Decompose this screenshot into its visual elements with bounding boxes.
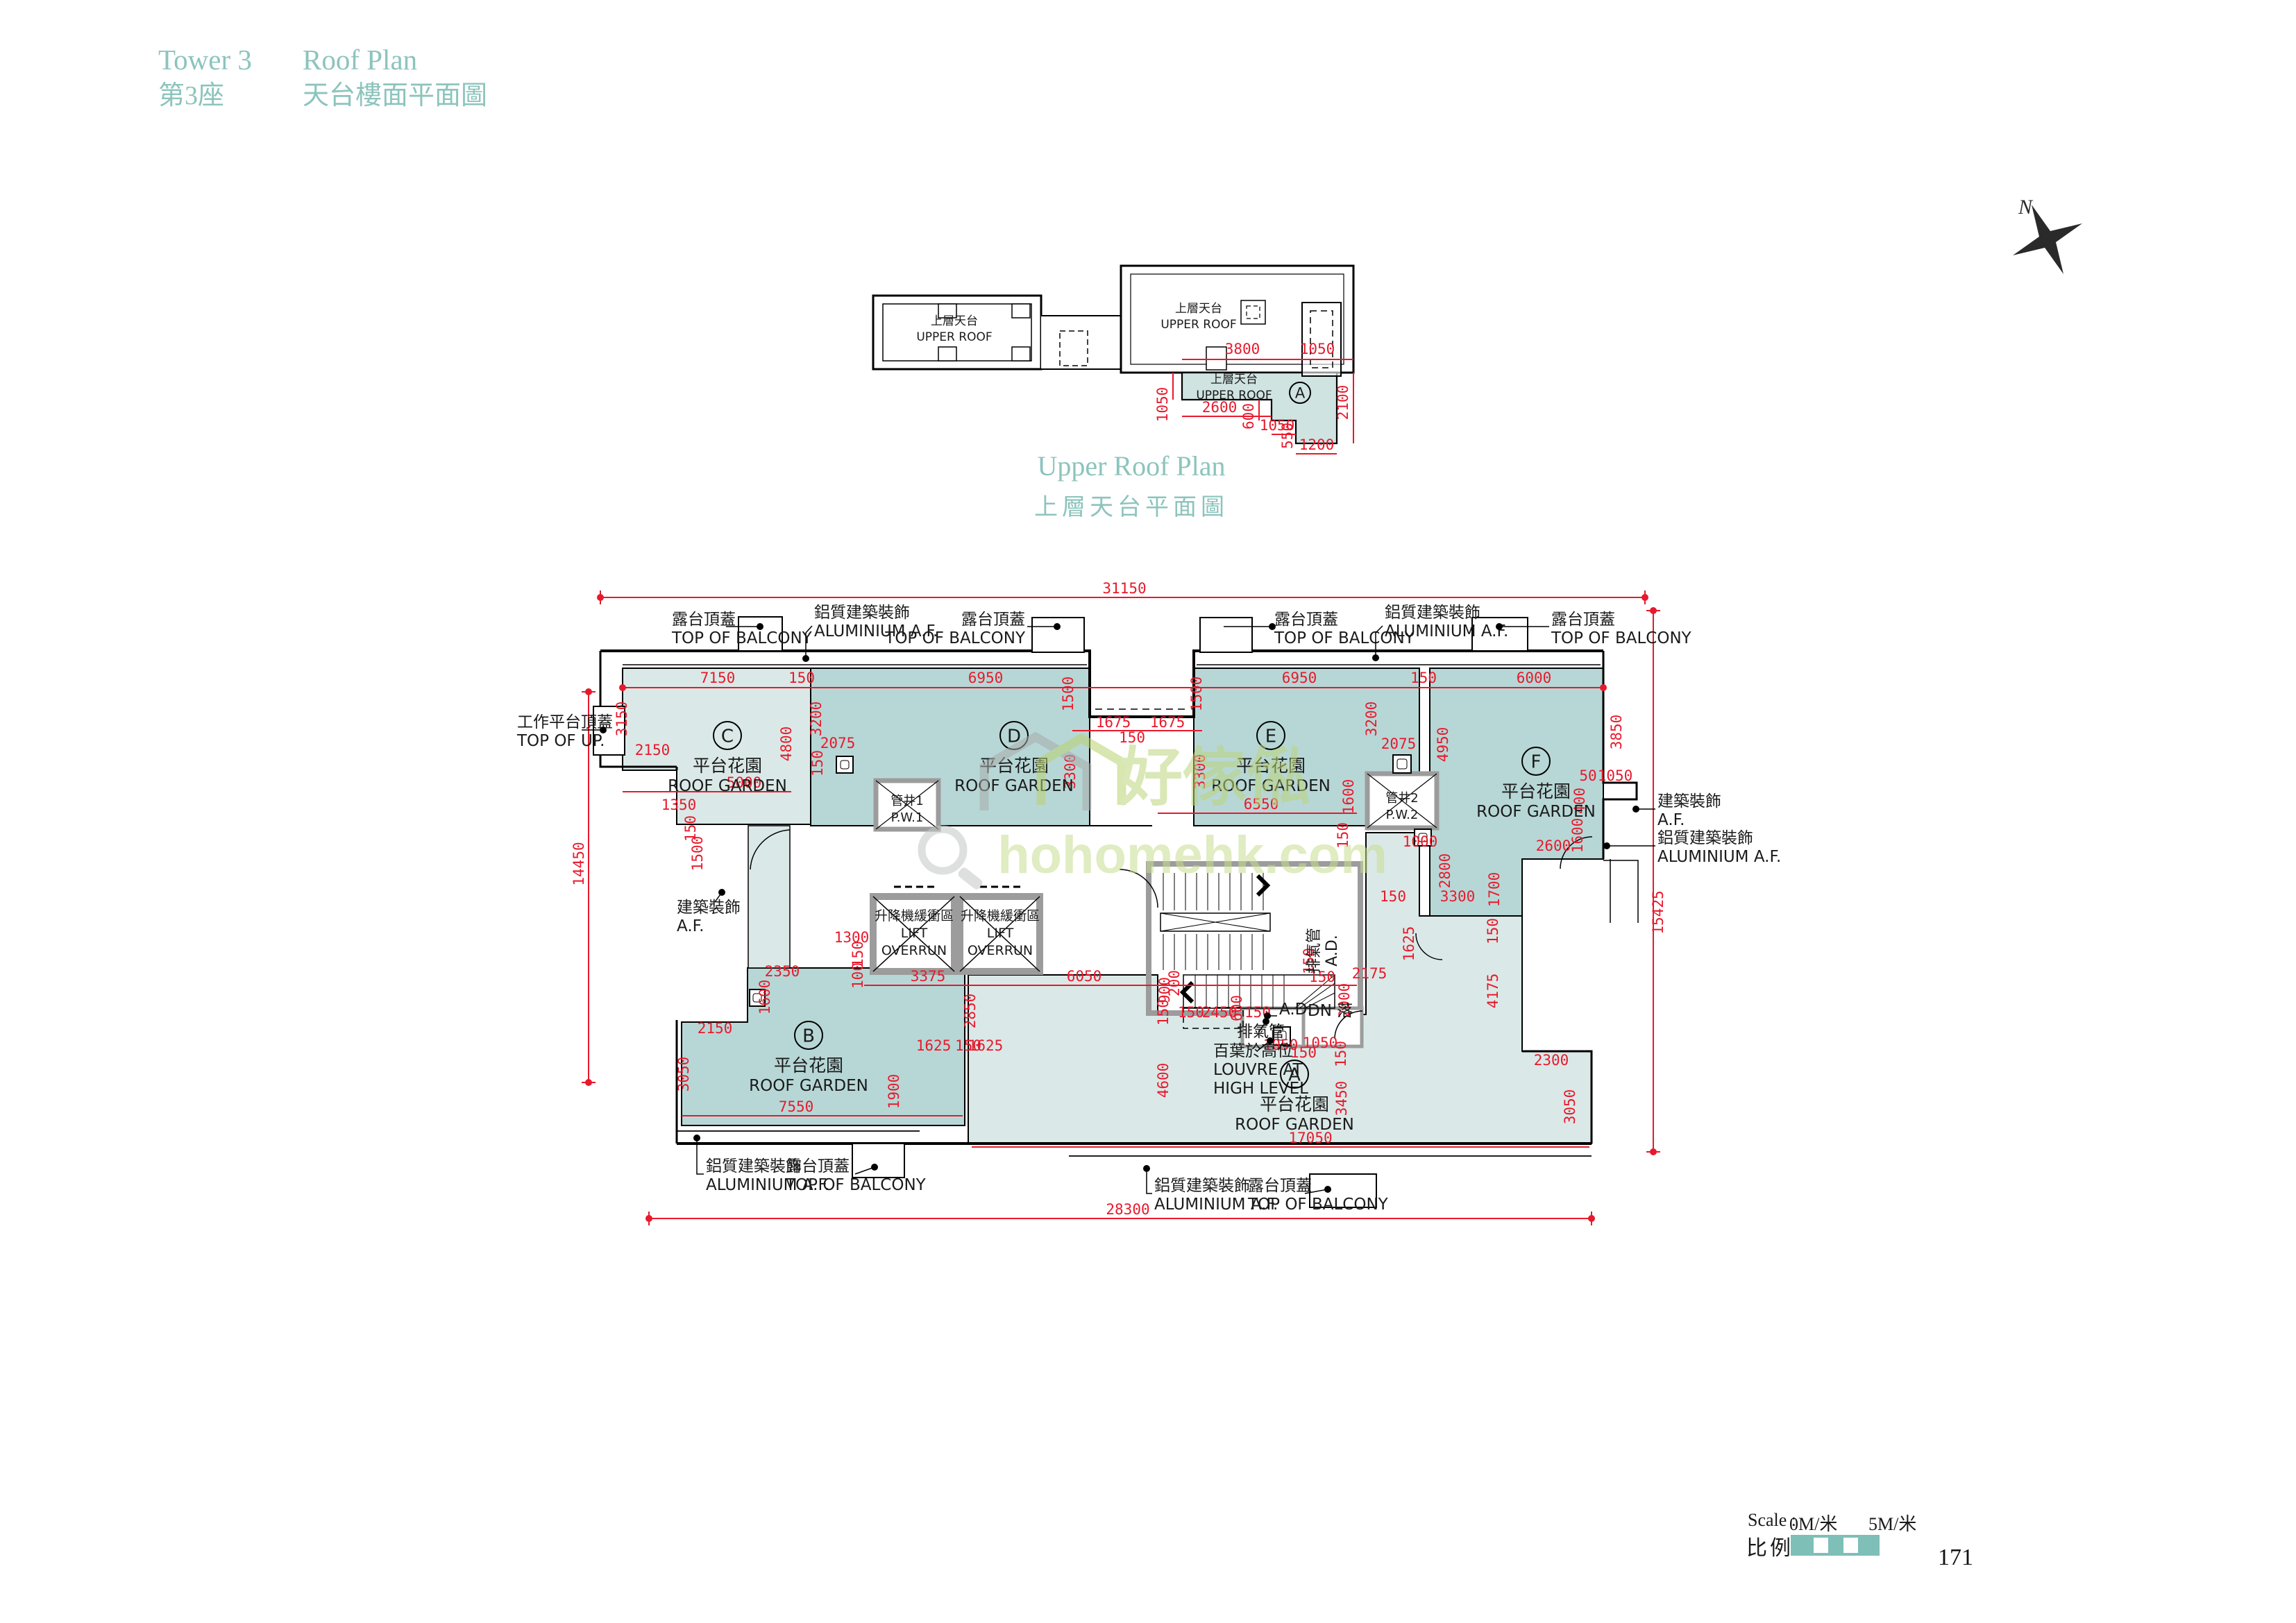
plan-label: 管井1: [890, 794, 923, 808]
brochure-page: Tower 3 Roof Plan 第3座 天台樓面平面圖 Upper Roof…: [0, 0, 2296, 1623]
scale-bar-segment: [1814, 1538, 1828, 1553]
dimension-label: 1900: [886, 1074, 902, 1110]
callout-dot: [718, 889, 725, 896]
callout-dot: [1264, 1012, 1271, 1019]
dimension-label: 2075: [1381, 736, 1417, 752]
callout-label: TOP OF BALCONY: [1247, 1196, 1389, 1214]
callout-label: 建築裝飾: [1657, 792, 1721, 810]
dimension-label: 4950: [1435, 727, 1451, 763]
callout-dot: [1603, 842, 1610, 849]
dimension-label: 2800: [1437, 853, 1453, 889]
plan-label: OVERRUN: [968, 943, 1033, 958]
callout-label: TOP OF BALCONY: [884, 629, 1026, 647]
roof-garden-label-en: ROOF GARDEN: [954, 777, 1074, 795]
scale-end-label: 5M/米: [1868, 1510, 1916, 1536]
roof-garden-label-en: ROOF GARDEN: [668, 777, 787, 795]
dimension-label: 200: [1166, 970, 1183, 996]
plan-label: P.W.2: [1386, 808, 1419, 822]
dimension-label: 1050: [1598, 767, 1633, 784]
upper-roof-label: UPPER ROOF: [1196, 389, 1272, 402]
callout-dot: [757, 623, 763, 630]
dimension-label: 150: [1410, 670, 1437, 686]
scale-bar-segment: [1843, 1538, 1858, 1553]
dimension-label: 15425: [1650, 890, 1666, 934]
dimension-label: 6950: [968, 670, 1004, 686]
main-roof-plan: [582, 590, 1660, 1225]
callout-label: A.F.: [1657, 811, 1685, 829]
dimension-label: 1625: [916, 1037, 952, 1054]
callout-label: TOP OF BALCONY: [785, 1176, 927, 1194]
dimension-label: 1050: [1300, 341, 1335, 357]
dimension-label: 1625: [968, 1037, 1004, 1054]
dimension-label: 14450: [571, 842, 587, 885]
callout-dot: [1324, 1186, 1331, 1193]
dimension-label: 1625: [1401, 926, 1417, 962]
unit-letter: F: [1531, 751, 1542, 772]
dimension-label: 1500: [1188, 677, 1205, 712]
callout-label: 排氣管: [1237, 1023, 1285, 1041]
callout-label: 露台頂蓋: [1248, 1177, 1312, 1195]
roof-garden-label-zh: 平台花園: [1260, 1094, 1329, 1114]
callout-leader: [1147, 1169, 1152, 1193]
plan-label: 管井2: [1385, 791, 1418, 806]
dimension-label: 1500: [689, 836, 706, 872]
dimension-label: 3200: [1363, 702, 1380, 737]
callout-label: 百葉於高位: [1213, 1042, 1293, 1060]
north-compass-icon: N: [2013, 196, 2082, 274]
dimension-label: 150: [809, 750, 826, 776]
callout-dot: [1054, 623, 1061, 630]
upper-roof-label: 上層天台: [931, 314, 978, 328]
dimension-label: 2350: [765, 963, 800, 980]
dimension-label: 150: [1178, 1004, 1204, 1021]
callout-dot: [1496, 623, 1503, 630]
dimension-label: 100: [850, 962, 866, 989]
dimension-label: 2150: [635, 742, 670, 758]
dimension-label: 2075: [820, 735, 856, 751]
dimension-label: 2300: [1534, 1052, 1569, 1069]
unit-letter: A: [1288, 1064, 1301, 1085]
dimension-label: 7550: [779, 1098, 814, 1115]
dimension-label: 1500: [1060, 677, 1077, 712]
dimension-label: 600: [1229, 995, 1245, 1021]
callout-dot: [1632, 806, 1639, 813]
callout-label: 鋁質建築裝飾: [1657, 829, 1753, 847]
dimension-label: 28300: [1106, 1201, 1149, 1218]
callout-dot: [693, 1135, 700, 1141]
callout-dot: [1372, 654, 1379, 661]
plan-label: P.W.1: [891, 810, 924, 825]
dimension-label: 1600: [757, 980, 773, 1015]
callout-label: TOP OF BALCONY: [671, 629, 813, 647]
upper-roof-label: UPPER ROOF: [1160, 318, 1236, 332]
dimension-label: 1050: [1154, 387, 1171, 423]
dimension-label: 150: [1333, 1041, 1349, 1067]
callout-label: TOP OF BALCONY: [1551, 629, 1692, 647]
dimension-label: 1675: [1096, 714, 1131, 731]
dimension-label: 1600: [1569, 818, 1586, 853]
callout-label: 鋁質建築裝飾: [814, 604, 910, 622]
roof-garden-label-zh: 平台花園: [693, 756, 762, 776]
scale-bar-graphic: [1791, 1535, 1880, 1556]
unit-letter: C: [721, 726, 734, 747]
watermark-magnifier-icon: [922, 829, 963, 871]
dimension-label: 3375: [911, 968, 946, 985]
callout-label: 建築裝飾: [677, 899, 741, 917]
dimension-label: 6000: [1517, 670, 1552, 686]
dimension-label: 550: [1279, 423, 1296, 449]
page-number: 171: [1938, 1545, 1973, 1571]
dimension-label: 1350: [661, 797, 697, 813]
dimension-label: 2850: [962, 994, 979, 1029]
upper-roof-label: UPPER ROOF: [916, 330, 992, 344]
callout-dot: [1143, 1165, 1150, 1172]
dimension-label: 3050: [1562, 1089, 1578, 1125]
dimension-label: 1600: [1340, 779, 1357, 815]
watermark-brand: 好傢俬: [1118, 742, 1310, 813]
dimension-label: 600: [1240, 403, 1257, 430]
callout-label: 露台頂蓋: [1551, 611, 1615, 629]
dimension-label: 50: [1579, 767, 1596, 784]
dimension-label: 3850: [1608, 715, 1625, 750]
roof-garden-label-en: ROOF GARDEN: [1476, 803, 1596, 821]
dimension-label: 6950: [1282, 670, 1317, 686]
callout-label: DN 落: [1308, 1002, 1353, 1020]
callout-label: 露台頂蓋: [786, 1157, 850, 1175]
callout-label: 露台頂蓋: [961, 611, 1025, 629]
plan-label: 升降機緩衝區: [875, 908, 954, 924]
callout-label: 鋁質建築裝飾: [1154, 1177, 1250, 1195]
dimension-label: 150: [788, 670, 815, 686]
dimension-label: 3200: [808, 702, 825, 737]
dimension-label: 3050: [675, 1057, 692, 1092]
callout-dot: [871, 1164, 878, 1171]
dimension-label: 2600: [1536, 838, 1571, 854]
dimension-label: 3300: [1440, 888, 1476, 905]
scale-label-zh: 比例: [1746, 1531, 1793, 1561]
dimension-label: 4175: [1485, 974, 1501, 1009]
dimension-label: 150: [1155, 999, 1172, 1026]
callout-label: ALUMINIUM A.F.: [1385, 622, 1508, 640]
callout-label: 鋁質建築裝飾: [1385, 604, 1480, 622]
dimension-label: 1000: [1403, 833, 1438, 850]
roof-garden-label-en: ROOF GARDEN: [1235, 1116, 1354, 1134]
dimension-label: 150: [1485, 918, 1501, 944]
watermark-domain: hohomehk.com: [997, 826, 1387, 885]
callout-label: 露台頂蓋: [672, 611, 736, 629]
roof-garden-label-en: ROOF GARDEN: [749, 1077, 868, 1095]
dimension-label: 2100: [1335, 385, 1351, 420]
roof-garden-label-zh: 平台花園: [774, 1055, 843, 1076]
dimension-label: 6050: [1067, 968, 1102, 985]
callout-label: A.F.: [677, 917, 704, 935]
plan-label: LIFT: [901, 926, 928, 941]
upper-roof-label: 上層天台: [1210, 373, 1258, 386]
callout-label: 露台頂蓋: [1274, 611, 1338, 629]
callout-dot: [802, 655, 809, 662]
dimension-label: 1675: [1150, 714, 1185, 731]
dimension-label: 150: [1380, 888, 1406, 905]
plan-label: 升降機緩衝區: [961, 908, 1040, 924]
callout-dot: [600, 726, 607, 733]
side-passage-area: [748, 826, 790, 968]
dimension-label: 1200: [1299, 436, 1335, 453]
callout-label: TOP OF UP.: [516, 732, 605, 750]
unit-letter: B: [802, 1026, 815, 1046]
dimension-label: 7150: [700, 670, 736, 686]
dimension-label: 4800: [778, 726, 795, 762]
unit-letter: A: [1295, 385, 1306, 402]
callout-label: ALUMINIUM A.F.: [1657, 848, 1781, 866]
upper-roof-label: 上層天台: [1175, 302, 1222, 316]
scale-start-label: 0M/米: [1789, 1510, 1837, 1536]
roof-plan-drawing: 3115028300144501542571501506950695015060…: [0, 0, 2296, 1623]
plan-label: LIFT: [987, 926, 1014, 941]
dimension-label: 4600: [1155, 1063, 1172, 1098]
dimension-label: 1700: [1486, 872, 1503, 908]
roof-garden-label-zh: 平台花園: [1501, 781, 1571, 801]
dimension-label: 3150: [614, 702, 630, 737]
callout-label: 工作平台頂蓋: [517, 713, 613, 731]
callout-label: A.D.: [1324, 935, 1341, 967]
plan-label: OVERRUN: [881, 943, 947, 958]
callout-dot: [1269, 623, 1276, 630]
compass-n-label: N: [2018, 196, 2034, 219]
dimension-label: 3800: [1225, 341, 1260, 357]
dimension-label: 3450: [1333, 1081, 1350, 1116]
dimension-label: 2150: [698, 1020, 733, 1037]
callout-label: 排氣管: [1306, 928, 1323, 974]
dimension-label: 31150: [1102, 580, 1146, 597]
dimension-label: 2175: [1352, 965, 1387, 982]
